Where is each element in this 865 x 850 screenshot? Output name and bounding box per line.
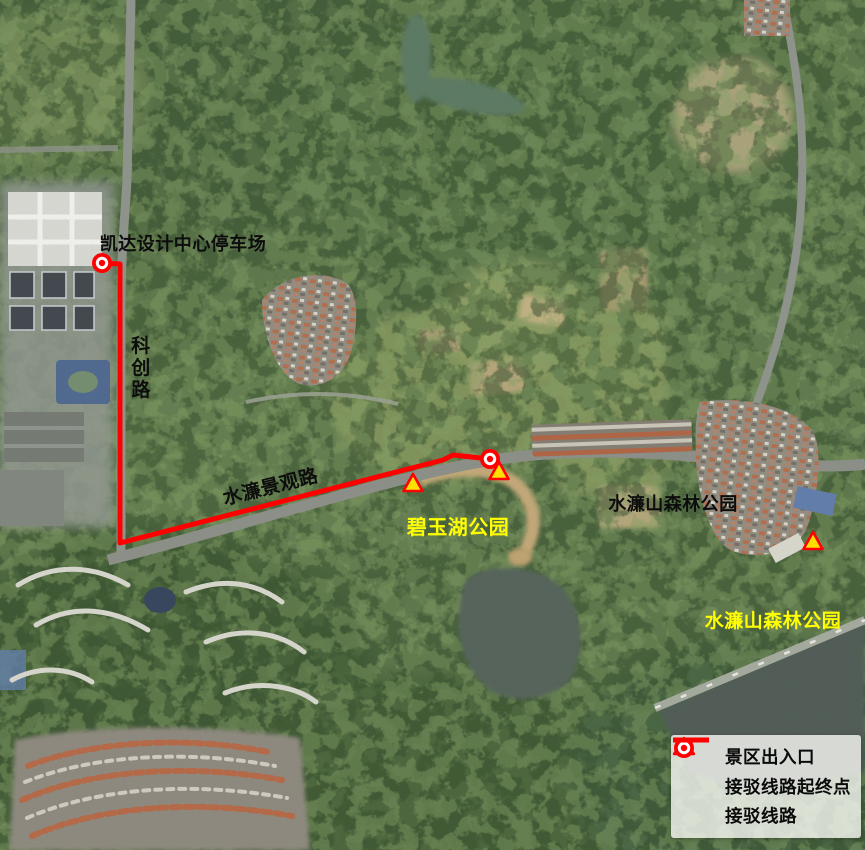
- shuilianshan-forest-park-label-south: 水濂山森林公园: [705, 609, 842, 632]
- parking-lot-label: 凯达设计中心停车场: [100, 233, 267, 254]
- kechuang-road-label: 科创路: [130, 334, 151, 401]
- route-annotation-overlay: 凯达设计中心停车场科创路水濂景观路碧玉湖公园水濂山森林公园水濂山森林公园: [0, 0, 865, 850]
- entrance-marker-west: [404, 474, 423, 491]
- shuilianshan-forest-park-label-north: 水濂山森林公园: [608, 493, 738, 514]
- legend-panel: 景区出入口 接驳线路起终点 接驳线路: [671, 735, 861, 838]
- entrance-marker-east: [804, 532, 823, 549]
- biyu-lake-park-label: 碧玉湖公园: [406, 515, 510, 539]
- map-canvas[interactable]: 凯达设计中心停车场科创路水濂景观路碧玉湖公园水濂山森林公园水濂山森林公园 景区出…: [0, 0, 865, 850]
- legend-label-entrance: 景区出入口: [725, 744, 815, 769]
- legend-label-endpoint: 接驳线路起终点: [725, 774, 851, 799]
- endpoint-marker-lake-dot: [487, 456, 493, 462]
- endpoint-marker-parking-dot: [99, 260, 105, 266]
- legend-row-entrance: 景区出入口: [671, 744, 861, 769]
- legend-row-endpoint: 接驳线路起终点: [671, 774, 861, 799]
- legend-label-route: 接驳线路: [725, 803, 797, 828]
- legend-row-route: 接驳线路: [671, 803, 861, 828]
- shuttle-route-line: [102, 263, 490, 543]
